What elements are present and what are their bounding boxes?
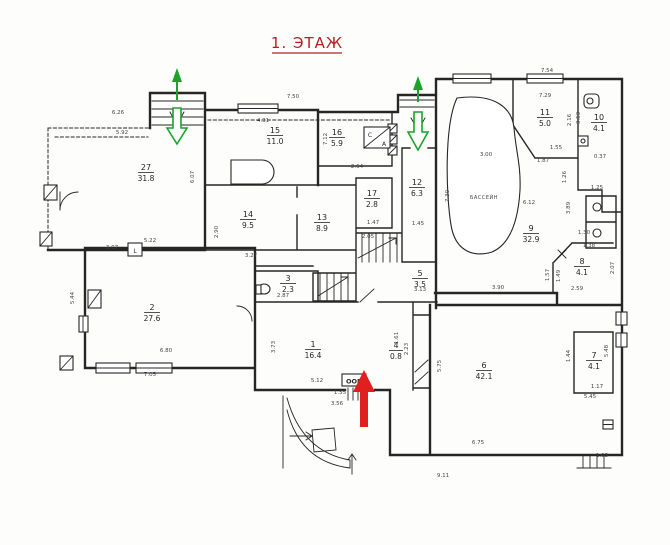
room-number: 14 <box>243 210 253 219</box>
window <box>616 312 627 325</box>
dimension: 5.44 <box>70 291 76 304</box>
dimension: 1.61 <box>394 332 400 344</box>
dimension: 5.92 <box>116 130 128 136</box>
dimension: 1.30 <box>578 230 591 236</box>
room-area: 4.1 <box>593 124 605 133</box>
room-area: 2.8 <box>366 200 378 209</box>
floor-plan-page: 1. ЭТАЖ <box>0 0 670 545</box>
room-area: 5.0 <box>539 119 551 128</box>
dimension: 6.12 <box>523 200 535 206</box>
room-number: 2 <box>149 303 154 312</box>
dimension: 9.11 <box>437 473 449 479</box>
room-number: 10 <box>594 113 604 122</box>
dimension: 2.05 <box>362 234 375 240</box>
window <box>79 316 88 332</box>
dimension: 2.23 <box>404 342 410 355</box>
sink-drain-icon <box>581 139 585 143</box>
dimension: 7.50 <box>287 94 300 100</box>
room-area: 4.1 <box>588 362 600 371</box>
dimension: 6.80 <box>160 348 173 354</box>
room-number: 6 <box>481 361 486 370</box>
room-number: 9 <box>528 224 533 233</box>
dimension: 2.87 <box>277 293 290 299</box>
dimension: 3.53 <box>576 111 582 124</box>
dimension: 3.90 <box>492 285 505 291</box>
room-number: 5 <box>417 269 422 278</box>
room-area: 4.1 <box>576 268 588 277</box>
toilet-icon <box>593 203 601 211</box>
dimension: 1.47 <box>367 220 380 226</box>
dimension: 2.90 <box>214 225 220 238</box>
room-area: 0.8 <box>390 352 402 361</box>
room-number: 16 <box>332 128 342 137</box>
dimension: 0.37 <box>594 154 607 160</box>
pool-outline <box>447 97 520 254</box>
dimension: 7.05 <box>144 372 157 378</box>
dimension: 1.25 <box>591 185 604 191</box>
compass-north-letter: С <box>368 132 372 139</box>
room-area: 5.9 <box>331 139 343 148</box>
dimension: 4.31 <box>257 118 269 124</box>
room-area: 8.9 <box>316 224 328 233</box>
dimension: 3.07 <box>106 245 119 251</box>
dimension: 7.12 <box>323 133 329 145</box>
dimension: 1.26 <box>562 170 568 183</box>
room-area: 16.4 <box>305 351 322 360</box>
dimension: 6.75 <box>472 440 485 446</box>
dimension: 5.12 <box>311 378 323 384</box>
dimension: 2.16 <box>567 113 573 126</box>
dimension: 1.03 <box>596 453 609 459</box>
room-number: 13 <box>317 213 327 222</box>
dimension: 2.07 <box>610 261 616 274</box>
dimension: 1.87 <box>537 158 550 164</box>
room-area: 6.3 <box>411 189 423 198</box>
room-number: 15 <box>270 126 280 135</box>
dimension: 5.75 <box>437 359 443 372</box>
dimension: 1.55 <box>334 390 347 396</box>
room-number: 12 <box>412 178 422 187</box>
room-area: 42.1 <box>476 372 493 381</box>
dimension: 1.38 <box>583 243 596 249</box>
dimension: 1.55 <box>550 145 563 151</box>
dimension: 7.30 <box>445 189 451 202</box>
dimension: 1.44 <box>566 349 572 362</box>
dimension: 1.45 <box>412 221 425 227</box>
room-area: 9.5 <box>242 221 254 230</box>
room-number: 17 <box>367 189 377 198</box>
dimension: 3.00 <box>480 152 493 158</box>
toilet-flush-icon <box>587 98 593 104</box>
toilet-tank-icon <box>256 285 261 294</box>
room-number: 11 <box>540 108 550 117</box>
room-number: 3 <box>285 274 290 283</box>
room-number: 27 <box>141 163 151 172</box>
room-number: 1 <box>310 340 315 349</box>
dimension: 5.45 <box>584 394 597 400</box>
page-title: 1. ЭТАЖ <box>271 34 343 52</box>
dimension: 3.73 <box>271 340 277 353</box>
dimension: 5.48 <box>604 344 610 357</box>
room-number: 8 <box>579 257 584 266</box>
room-area: 32.9 <box>523 235 540 244</box>
bathtub <box>231 160 274 184</box>
dimension: 1.49 <box>556 269 562 282</box>
dimension: 5.22 <box>144 238 156 244</box>
room-number: 7 <box>591 351 596 360</box>
room-area: 27.6 <box>144 314 161 323</box>
dimension: 3.56 <box>331 401 344 407</box>
pool-label: БАССЕЙН <box>470 194 498 201</box>
window <box>616 333 627 347</box>
dimension: 3.27 <box>245 253 258 259</box>
dimension: 2.59 <box>571 286 584 292</box>
room-area: 31.8 <box>138 174 155 183</box>
dimension: 6.07 <box>190 170 196 183</box>
dimension: 7.54 <box>541 68 554 74</box>
dimension: 2.64 <box>351 164 364 170</box>
dimension: 3.13 <box>414 287 427 293</box>
toilet-icon <box>593 229 601 237</box>
dimension: 7.29 <box>539 93 552 99</box>
dimension: 1.17 <box>591 384 604 390</box>
dimension: 1.57 <box>545 268 551 281</box>
floor-plan-drawing: 1. ЭТАЖ <box>0 0 670 545</box>
dimension: 3.89 <box>566 201 572 214</box>
dimension: 6.26 <box>112 110 125 116</box>
room-area: 11.0 <box>267 137 284 146</box>
